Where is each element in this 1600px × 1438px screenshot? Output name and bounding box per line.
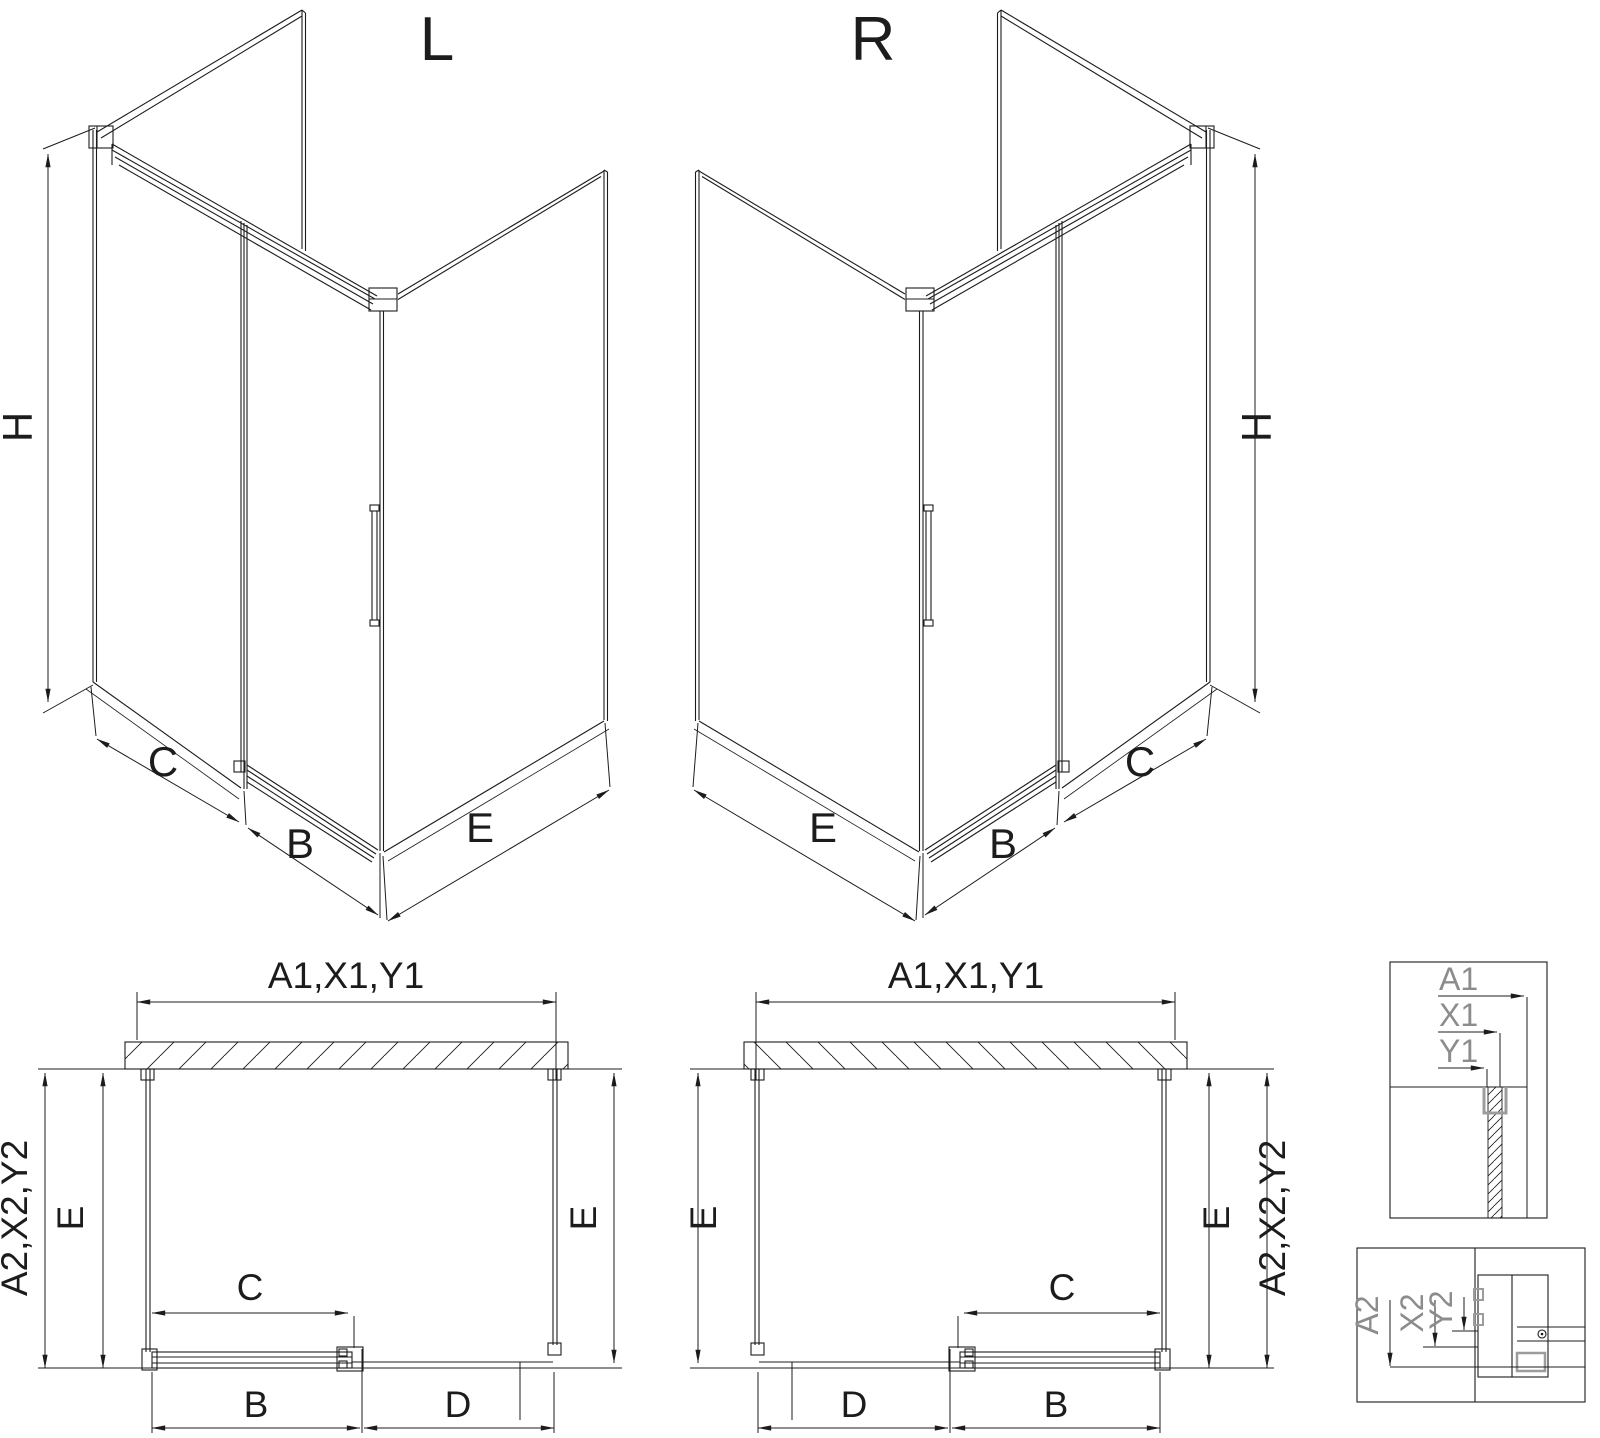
plan-view-right: A1,X1,Y1 A2,X2,Y2 E E C B D — [683, 955, 1293, 1433]
plan-right-dim-c: C — [1049, 1267, 1076, 1308]
plan-right-dim-top: A1,X1,Y1 — [888, 955, 1044, 996]
dim-label-b-left: B — [286, 820, 314, 867]
dim-label-b-right: B — [989, 820, 1017, 867]
iso-left-geometry — [43, 10, 610, 921]
plan-right-dim-side: A2,X2,Y2 — [1252, 1140, 1293, 1296]
plan-right-geometry — [690, 992, 1274, 1433]
iso-right-geometry — [693, 10, 1260, 921]
plan-left-dim-side: A2,X2,Y2 — [0, 1140, 35, 1296]
plan-left-dim-top: A1,X1,Y1 — [268, 955, 424, 996]
detail-door-dim-y2: Y2 — [1423, 1290, 1459, 1329]
plan-left-dim-c: C — [237, 1267, 264, 1308]
dim-label-c-right: C — [1125, 738, 1155, 785]
dim-label-h-right: H — [1233, 412, 1280, 442]
plan-right-dim-e-right: E — [1196, 1206, 1237, 1231]
dim-label-e-right: E — [809, 804, 837, 851]
dim-label-h-left: H — [0, 412, 41, 442]
plan-right-dim-b: B — [1044, 1384, 1069, 1425]
dim-label-e-left: E — [466, 804, 494, 851]
detail-wall-dim-y1: Y1 — [1439, 1033, 1478, 1069]
plan-left-dim-e-right: E — [563, 1206, 604, 1231]
shower-enclosure-technical-drawing: L H C B E R H C B E A1,X1,Y1 A2,X2,Y2 E … — [0, 0, 1600, 1438]
detail-wall-dim-a1: A1 — [1439, 961, 1478, 997]
plan-right-dim-e-left: E — [683, 1206, 724, 1231]
detail-door-dim-a2: A2 — [1349, 1295, 1385, 1334]
plan-left-dim-b: B — [244, 1384, 269, 1425]
door-bracket-icon — [1517, 1353, 1545, 1371]
variant-label-left: L — [420, 5, 454, 74]
iso-view-right: R H C B E — [693, 5, 1280, 921]
plan-left-dim-d: D — [445, 1384, 472, 1425]
plan-right-dim-d: D — [841, 1384, 868, 1425]
dim-label-c-left: C — [148, 738, 178, 785]
plan-left-geometry — [38, 992, 622, 1433]
detail-door-section: A2 X2 Y2 — [1349, 1248, 1585, 1402]
variant-label-right: R — [851, 5, 896, 74]
detail-wall-dim-x1: X1 — [1439, 997, 1478, 1033]
plan-left-dim-e-left: E — [50, 1206, 91, 1231]
detail-wall-section: A1 X1 Y1 — [1390, 961, 1547, 1218]
plan-view-left: A1,X1,Y1 A2,X2,Y2 E E C B D — [0, 955, 622, 1433]
technical-drawing-page: L H C B E R H C B E A1,X1,Y1 A2,X2,Y2 E … — [0, 0, 1600, 1438]
iso-view-left: L H C B E — [0, 5, 610, 921]
